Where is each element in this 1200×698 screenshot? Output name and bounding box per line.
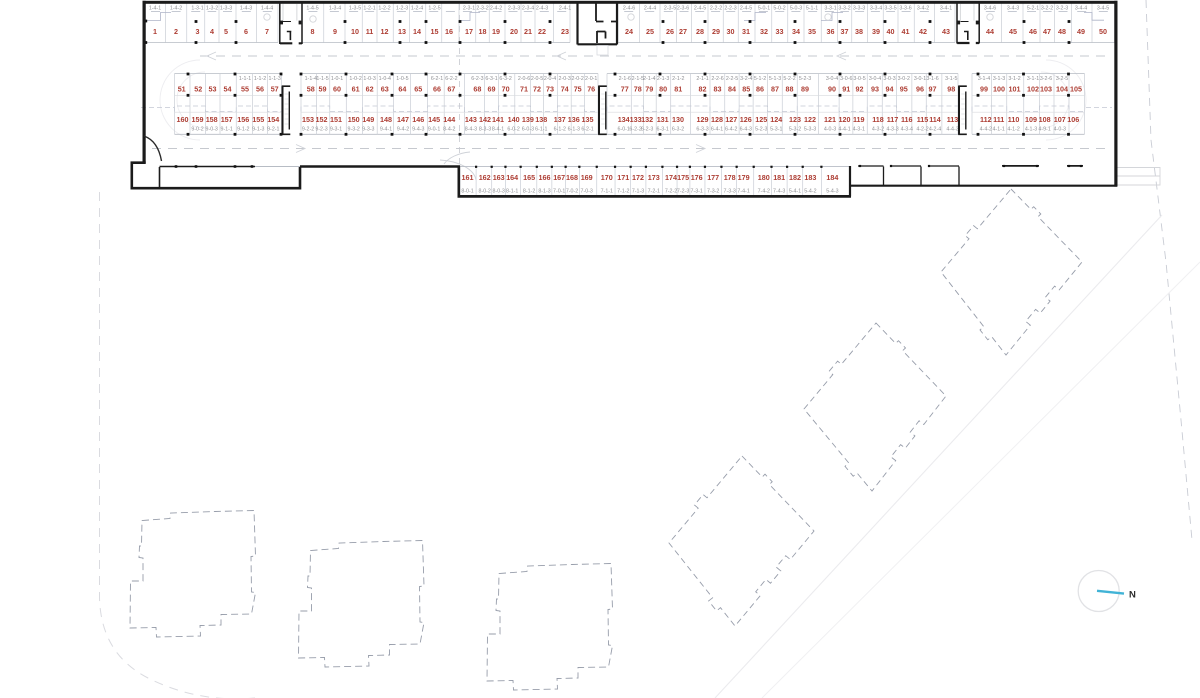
svg-text:150: 150 (348, 115, 360, 124)
svg-text:14: 14 (413, 27, 421, 36)
svg-text:51: 51 (178, 84, 186, 93)
svg-text:148: 148 (380, 115, 392, 124)
svg-text:9-0-2: 9-0-2 (191, 126, 203, 132)
svg-text:163: 163 (493, 173, 505, 182)
svg-text:1-2-5: 1-2-5 (428, 6, 440, 12)
svg-text:4-3-4: 4-3-4 (901, 126, 913, 132)
svg-text:60: 60 (333, 84, 341, 93)
svg-text:179: 179 (738, 173, 750, 182)
svg-text:1-1-2: 1-1-2 (254, 76, 266, 82)
svg-text:3-1-1: 3-1-1 (1027, 76, 1039, 82)
svg-text:3-1-3: 3-1-3 (993, 76, 1005, 82)
svg-text:4-3-1: 4-3-1 (853, 126, 865, 132)
svg-text:1-4-3: 1-4-3 (240, 6, 252, 12)
svg-text:74: 74 (561, 84, 569, 93)
svg-text:19: 19 (492, 27, 500, 36)
svg-text:107: 107 (1054, 115, 1066, 124)
svg-text:152: 152 (316, 115, 328, 124)
svg-text:1-4-2: 1-4-2 (170, 6, 182, 12)
svg-text:70: 70 (502, 84, 510, 93)
svg-text:1-1-3: 1-1-3 (269, 76, 281, 82)
svg-text:160: 160 (177, 115, 189, 124)
svg-text:7-1-1: 7-1-1 (601, 189, 613, 195)
svg-text:2-4-5: 2-4-5 (694, 6, 706, 12)
svg-text:59: 59 (319, 84, 327, 93)
svg-text:2-0-2: 2-0-2 (572, 76, 584, 82)
svg-text:5-2-3: 5-2-3 (799, 76, 811, 82)
svg-text:166: 166 (539, 173, 551, 182)
svg-text:3-0-6: 3-0-6 (840, 76, 852, 82)
svg-text:26: 26 (666, 27, 674, 36)
svg-text:1-4-4: 1-4-4 (261, 6, 273, 12)
svg-text:6-3-2: 6-3-2 (672, 126, 684, 132)
svg-text:4-2-2: 4-2-2 (916, 126, 928, 132)
svg-text:137: 137 (554, 115, 566, 124)
svg-text:2-4-2: 2-4-2 (490, 6, 502, 12)
svg-text:119: 119 (853, 115, 865, 124)
svg-text:2-0-3: 2-0-3 (559, 76, 571, 82)
svg-text:4-1-2: 4-1-2 (1007, 126, 1019, 132)
svg-text:76: 76 (587, 84, 595, 93)
svg-text:62: 62 (366, 84, 374, 93)
svg-text:2-0-6: 2-0-6 (518, 76, 530, 82)
svg-text:3-3-6: 3-3-6 (899, 6, 911, 12)
svg-text:1-2-4: 1-2-4 (411, 6, 423, 12)
svg-text:7-2-1: 7-2-1 (648, 189, 660, 195)
svg-text:6-2-3: 6-2-3 (641, 126, 653, 132)
svg-text:80: 80 (659, 84, 667, 93)
svg-text:89: 89 (801, 84, 809, 93)
svg-text:159: 159 (192, 115, 204, 124)
svg-text:5-2-1: 5-2-1 (1027, 6, 1039, 12)
svg-text:29: 29 (712, 27, 720, 36)
svg-text:86: 86 (756, 84, 764, 93)
svg-text:2-4-5: 2-4-5 (740, 6, 752, 12)
svg-text:2-1-6: 2-1-6 (619, 76, 631, 82)
svg-text:2-4-1: 2-4-1 (559, 6, 571, 12)
svg-text:55: 55 (241, 84, 249, 93)
svg-text:153: 153 (302, 115, 314, 124)
svg-text:5-3-2: 5-3-2 (789, 126, 801, 132)
svg-text:8-4-3: 8-4-3 (465, 126, 477, 132)
svg-text:7-3-1: 7-3-1 (691, 189, 703, 195)
svg-text:56: 56 (256, 84, 264, 93)
svg-text:3: 3 (196, 27, 200, 36)
svg-text:109: 109 (1025, 115, 1037, 124)
svg-text:165: 165 (523, 173, 535, 182)
svg-text:6-2-1: 6-2-1 (431, 76, 443, 82)
svg-text:97: 97 (929, 84, 937, 93)
svg-text:13: 13 (398, 27, 406, 36)
svg-text:3-1-4: 3-1-4 (978, 76, 990, 82)
svg-text:44: 44 (986, 27, 994, 36)
svg-text:8-4-2: 8-4-2 (443, 126, 455, 132)
svg-text:92: 92 (856, 84, 864, 93)
svg-text:9-3-1: 9-3-1 (330, 126, 342, 132)
svg-text:91: 91 (842, 84, 850, 93)
svg-text:9-1-2: 9-1-2 (237, 126, 249, 132)
svg-text:7-3-2: 7-3-2 (707, 189, 719, 195)
svg-text:8-1-3: 8-1-3 (538, 189, 550, 195)
svg-text:1-4-5: 1-4-5 (306, 6, 318, 12)
svg-text:183: 183 (804, 173, 816, 182)
svg-text:102: 102 (1027, 84, 1039, 93)
svg-text:90: 90 (828, 84, 836, 93)
svg-text:11: 11 (366, 27, 374, 36)
svg-text:2-4-6: 2-4-6 (623, 6, 635, 12)
svg-text:136: 136 (568, 115, 580, 124)
svg-text:2-3-2: 2-3-2 (476, 6, 488, 12)
svg-text:2-1-1: 2-1-1 (696, 76, 708, 82)
svg-text:18: 18 (479, 27, 487, 36)
svg-text:34: 34 (792, 27, 800, 36)
svg-text:65: 65 (414, 84, 422, 93)
svg-text:3-1-5: 3-1-5 (945, 76, 957, 82)
svg-text:139: 139 (522, 115, 534, 124)
svg-text:37: 37 (841, 27, 849, 36)
svg-text:69: 69 (488, 84, 496, 93)
svg-text:171: 171 (617, 173, 629, 182)
svg-text:141: 141 (492, 115, 504, 124)
svg-text:23: 23 (561, 27, 569, 36)
svg-text:39: 39 (872, 27, 880, 36)
svg-text:146: 146 (412, 115, 424, 124)
svg-text:17: 17 (465, 27, 473, 36)
svg-text:20: 20 (510, 27, 518, 36)
svg-text:45: 45 (1009, 27, 1017, 36)
svg-text:105: 105 (1070, 84, 1082, 93)
svg-text:7-1-2: 7-1-2 (617, 189, 629, 195)
svg-text:1-0-2: 1-0-2 (349, 76, 361, 82)
svg-text:104: 104 (1056, 84, 1068, 93)
svg-text:4-9-1: 4-9-1 (1038, 126, 1050, 132)
svg-text:121: 121 (824, 115, 836, 124)
svg-text:5-4-2: 5-4-2 (804, 189, 816, 195)
svg-text:101: 101 (1009, 84, 1021, 93)
svg-text:112: 112 (980, 115, 992, 124)
svg-text:32: 32 (760, 27, 768, 36)
svg-text:2-3-6: 2-3-6 (677, 6, 689, 12)
svg-text:162: 162 (479, 173, 491, 182)
svg-text:8-1-2: 8-1-2 (523, 189, 535, 195)
svg-text:182: 182 (789, 173, 801, 182)
svg-text:7: 7 (265, 27, 269, 36)
svg-text:3-2-3: 3-2-3 (1056, 6, 1068, 12)
svg-text:88: 88 (786, 84, 794, 93)
svg-text:172: 172 (632, 173, 644, 182)
svg-text:3-0-4: 3-0-4 (869, 76, 881, 82)
svg-text:3-0-5: 3-0-5 (853, 76, 865, 82)
svg-text:1-3-5: 1-3-5 (349, 6, 361, 12)
svg-text:110: 110 (1008, 115, 1020, 124)
svg-text:178: 178 (724, 173, 736, 182)
svg-text:7-4-3: 7-4-3 (773, 189, 785, 195)
svg-text:2-3-4: 2-3-4 (522, 6, 534, 12)
svg-text:4-4-3: 4-4-3 (946, 126, 958, 132)
svg-text:5-0-2: 5-0-2 (773, 6, 785, 12)
svg-text:149: 149 (362, 115, 374, 124)
svg-text:106: 106 (1067, 115, 1079, 124)
svg-text:5-4-3: 5-4-3 (826, 189, 838, 195)
svg-text:1-1-5: 1-1-5 (316, 76, 328, 82)
svg-text:68: 68 (473, 84, 481, 93)
svg-text:7-3-3: 7-3-3 (724, 189, 736, 195)
svg-text:108: 108 (1039, 115, 1051, 124)
svg-text:7-0-3: 7-0-3 (581, 189, 593, 195)
svg-text:7-0-1: 7-0-1 (553, 189, 565, 195)
svg-text:1-3-3: 1-3-3 (220, 6, 232, 12)
svg-text:9-2-3: 9-2-3 (315, 126, 327, 132)
svg-text:170: 170 (601, 173, 613, 182)
svg-text:3-4-2: 3-4-2 (917, 6, 929, 12)
svg-text:156: 156 (237, 115, 249, 124)
svg-text:3-0-1: 3-0-1 (914, 76, 926, 82)
svg-text:72: 72 (533, 84, 541, 93)
svg-text:114: 114 (929, 115, 941, 124)
svg-text:168: 168 (566, 173, 578, 182)
svg-text:63: 63 (381, 84, 389, 93)
svg-text:7-1-3: 7-1-3 (632, 189, 644, 195)
svg-text:4: 4 (210, 27, 214, 36)
svg-text:5-3-3: 5-3-3 (804, 126, 816, 132)
svg-text:164: 164 (506, 173, 518, 182)
svg-text:129: 129 (697, 115, 709, 124)
svg-text:1-2-1: 1-2-1 (363, 6, 375, 12)
svg-text:33: 33 (776, 27, 784, 36)
svg-text:6-3-1: 6-3-1 (657, 126, 669, 132)
svg-text:120: 120 (839, 115, 851, 124)
svg-text:155: 155 (252, 115, 264, 124)
svg-text:1-2-3: 1-2-3 (396, 6, 408, 12)
svg-text:9-4-3: 9-4-3 (412, 126, 424, 132)
svg-text:36: 36 (827, 27, 835, 36)
svg-text:4-0-3: 4-0-3 (824, 126, 836, 132)
svg-text:3-3-2: 3-3-2 (838, 6, 850, 12)
svg-text:9-4-1: 9-4-1 (380, 126, 392, 132)
svg-text:124: 124 (770, 115, 782, 124)
svg-text:138: 138 (535, 115, 547, 124)
svg-text:3-3-4: 3-3-4 (870, 6, 882, 12)
svg-text:61: 61 (352, 84, 360, 93)
svg-text:6-3-1: 6-3-1 (485, 76, 497, 82)
svg-text:6-1-2: 6-1-2 (554, 126, 566, 132)
svg-text:3-3-3: 3-3-3 (853, 6, 865, 12)
svg-text:3-3-5: 3-3-5 (884, 6, 896, 12)
svg-text:2-4-3: 2-4-3 (536, 6, 548, 12)
svg-text:5-1-2: 5-1-2 (754, 76, 766, 82)
svg-text:4-1-3: 4-1-3 (1025, 126, 1037, 132)
svg-text:95: 95 (900, 84, 908, 93)
svg-text:10: 10 (351, 27, 359, 36)
svg-text:1-3-2: 1-3-2 (206, 6, 218, 12)
svg-text:50: 50 (1099, 27, 1107, 36)
svg-text:9-3-2: 9-3-2 (348, 126, 360, 132)
svg-text:6-0-2: 6-0-2 (507, 126, 519, 132)
svg-text:1-1-1: 1-1-1 (239, 76, 251, 82)
svg-text:3-0-3: 3-0-3 (883, 76, 895, 82)
svg-text:38: 38 (855, 27, 863, 36)
svg-text:175: 175 (677, 173, 689, 182)
svg-text:5: 5 (224, 27, 228, 36)
svg-text:7-0-2: 7-0-2 (566, 189, 578, 195)
svg-text:52: 52 (194, 84, 202, 93)
svg-text:1-4-1: 1-4-1 (149, 6, 161, 12)
svg-text:154: 154 (267, 115, 279, 124)
svg-text:2-3-1: 2-3-1 (463, 6, 475, 12)
svg-text:79: 79 (645, 84, 653, 93)
svg-text:2-0-1: 2-0-1 (585, 76, 597, 82)
svg-text:9-0-1: 9-0-1 (428, 126, 440, 132)
svg-text:5-1-3: 5-1-3 (769, 76, 781, 82)
svg-text:2-1-4: 2-1-4 (643, 76, 655, 82)
svg-text:58: 58 (307, 84, 315, 93)
svg-text:67: 67 (447, 84, 455, 93)
svg-text:82: 82 (699, 84, 707, 93)
svg-text:4-2-4: 4-2-4 (929, 126, 941, 132)
svg-text:N: N (1129, 590, 1136, 601)
svg-text:78: 78 (634, 84, 642, 93)
svg-text:122: 122 (804, 115, 816, 124)
svg-text:73: 73 (546, 84, 554, 93)
svg-text:2-0-5: 2-0-5 (531, 76, 543, 82)
svg-text:35: 35 (808, 27, 816, 36)
svg-text:6-0-3: 6-0-3 (522, 126, 534, 132)
svg-text:3-2-6: 3-2-6 (1040, 76, 1052, 82)
svg-text:1-3-4: 1-3-4 (329, 6, 341, 12)
svg-text:2-2-3: 2-2-3 (724, 6, 736, 12)
svg-text:30: 30 (727, 27, 735, 36)
svg-text:40: 40 (887, 27, 895, 36)
svg-text:6-3-2: 6-3-2 (499, 76, 511, 82)
svg-text:81: 81 (674, 84, 682, 93)
svg-text:6-4-1: 6-4-1 (711, 126, 723, 132)
svg-text:131: 131 (657, 115, 669, 124)
svg-text:115: 115 (917, 115, 929, 124)
svg-text:9-1-1: 9-1-1 (221, 126, 233, 132)
svg-text:25: 25 (646, 27, 654, 36)
svg-text:2-2-2: 2-2-2 (710, 6, 722, 12)
svg-text:3-0-4: 3-0-4 (826, 76, 838, 82)
svg-text:126: 126 (740, 115, 752, 124)
svg-text:140: 140 (508, 115, 520, 124)
svg-text:4-1-1: 4-1-1 (993, 126, 1005, 132)
svg-text:161: 161 (462, 173, 474, 182)
svg-text:75: 75 (574, 84, 582, 93)
svg-text:127: 127 (725, 115, 737, 124)
svg-text:3-1-2: 3-1-2 (1008, 76, 1020, 82)
svg-text:5-2-3: 5-2-3 (755, 126, 767, 132)
svg-text:2: 2 (174, 27, 178, 36)
svg-text:6-1-3: 6-1-3 (568, 126, 580, 132)
svg-text:123: 123 (789, 115, 801, 124)
svg-text:8-3-3: 8-3-3 (479, 126, 491, 132)
svg-text:6-2-2: 6-2-2 (445, 76, 457, 82)
svg-text:7-2-3: 7-2-3 (677, 189, 689, 195)
svg-text:5-4-1: 5-4-1 (789, 189, 801, 195)
svg-text:142: 142 (479, 115, 491, 124)
svg-text:3-4-6: 3-4-6 (984, 6, 996, 12)
svg-text:134: 134 (618, 115, 630, 124)
svg-text:111: 111 (993, 115, 1004, 124)
svg-text:5-0-1: 5-0-1 (758, 6, 770, 12)
svg-text:2-2-6: 2-2-6 (711, 76, 723, 82)
svg-text:4-3-3: 4-3-3 (886, 126, 898, 132)
svg-text:47: 47 (1043, 27, 1051, 36)
svg-text:49: 49 (1077, 27, 1085, 36)
svg-text:132: 132 (641, 115, 653, 124)
svg-text:2-2-5: 2-2-5 (726, 76, 738, 82)
svg-text:94: 94 (886, 84, 894, 93)
svg-text:71: 71 (520, 84, 528, 93)
svg-text:144: 144 (443, 115, 455, 124)
svg-text:135: 135 (582, 115, 594, 124)
svg-text:151: 151 (330, 115, 342, 124)
svg-text:5-1-1: 5-1-1 (806, 6, 818, 12)
svg-text:42: 42 (919, 27, 927, 36)
svg-text:1: 1 (153, 27, 157, 36)
svg-text:9-0-3: 9-0-3 (206, 126, 218, 132)
svg-text:53: 53 (209, 84, 217, 93)
svg-text:6-2-3: 6-2-3 (471, 76, 483, 82)
svg-text:169: 169 (581, 173, 593, 182)
svg-text:83: 83 (714, 84, 722, 93)
svg-text:145: 145 (428, 115, 440, 124)
svg-text:1-2-2: 1-2-2 (378, 6, 390, 12)
svg-text:9-2-2: 9-2-2 (302, 126, 314, 132)
svg-text:3-4-4: 3-4-4 (1075, 6, 1087, 12)
svg-text:98: 98 (947, 84, 955, 93)
svg-text:3-0-2: 3-0-2 (898, 76, 910, 82)
svg-text:6-4-3: 6-4-3 (740, 126, 752, 132)
svg-text:3-4-1: 3-4-1 (940, 6, 952, 12)
svg-text:5-0-3: 5-0-3 (790, 6, 802, 12)
svg-text:8-0-1: 8-0-1 (461, 189, 473, 195)
svg-text:6: 6 (244, 27, 248, 36)
svg-text:24: 24 (625, 27, 633, 36)
svg-text:103: 103 (1040, 84, 1052, 93)
svg-text:9-2-1: 9-2-1 (267, 126, 279, 132)
svg-text:3-2-5: 3-2-5 (1056, 76, 1068, 82)
svg-text:7-2-2: 7-2-2 (665, 189, 677, 195)
svg-text:173: 173 (648, 173, 660, 182)
svg-text:5-2-2: 5-2-2 (783, 76, 795, 82)
svg-text:4-3-2: 4-3-2 (872, 126, 884, 132)
svg-text:8-0-3: 8-0-3 (493, 189, 505, 195)
svg-text:1-0-5: 1-0-5 (396, 76, 408, 82)
svg-text:22: 22 (538, 27, 546, 36)
svg-text:7-4-1: 7-4-1 (737, 189, 749, 195)
svg-text:130: 130 (672, 115, 684, 124)
svg-text:3-2-2: 3-2-2 (1041, 6, 1053, 12)
svg-text:3-4-5: 3-4-5 (1097, 6, 1109, 12)
svg-text:6-3-3: 6-3-3 (696, 126, 708, 132)
svg-text:9: 9 (333, 27, 337, 36)
svg-text:99: 99 (980, 84, 988, 93)
svg-text:31: 31 (742, 27, 750, 36)
svg-text:2-1-2: 2-1-2 (672, 76, 684, 82)
svg-text:2-0-4: 2-0-4 (544, 76, 556, 82)
svg-text:176: 176 (691, 173, 703, 182)
svg-text:4-0-3: 4-0-3 (1054, 126, 1066, 132)
svg-text:3-2-4: 3-2-4 (740, 76, 752, 82)
svg-text:84: 84 (728, 84, 736, 93)
svg-text:54: 54 (224, 84, 232, 93)
svg-text:64: 64 (398, 84, 406, 93)
svg-text:117: 117 (887, 115, 899, 124)
svg-text:6-1-1: 6-1-1 (535, 126, 547, 132)
svg-text:3-1-6: 3-1-6 (926, 76, 938, 82)
svg-text:158: 158 (206, 115, 218, 124)
